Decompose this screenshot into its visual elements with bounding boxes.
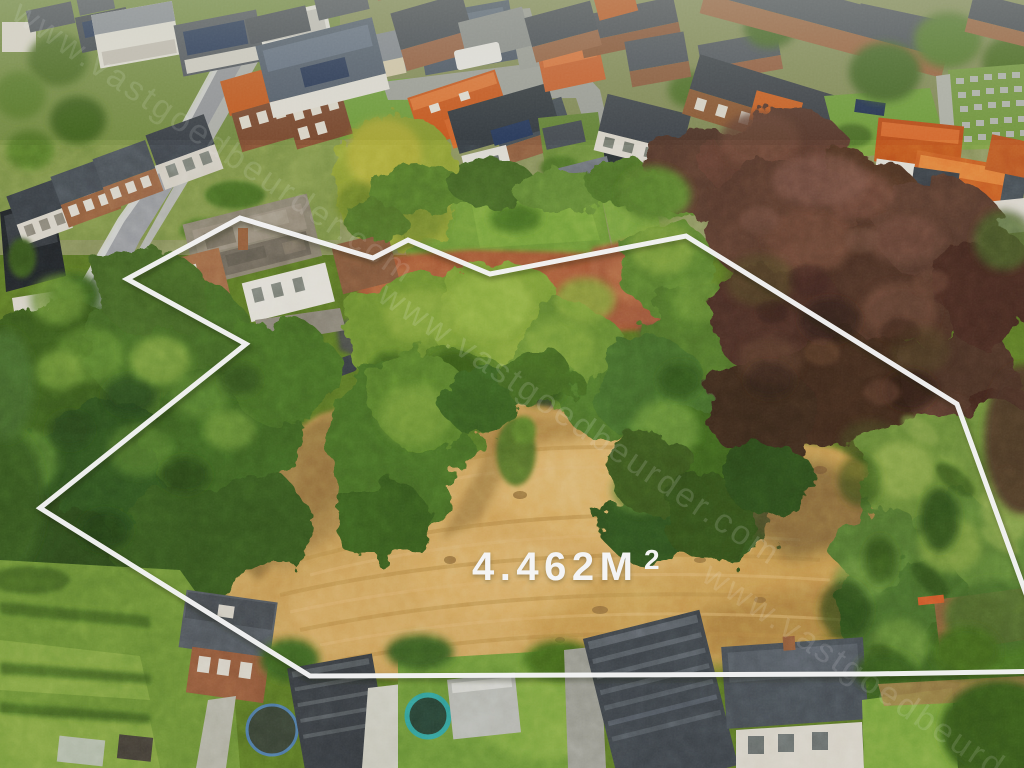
svg-text:2: 2	[644, 544, 660, 575]
svg-text:4.462M: 4.462M	[472, 545, 638, 589]
